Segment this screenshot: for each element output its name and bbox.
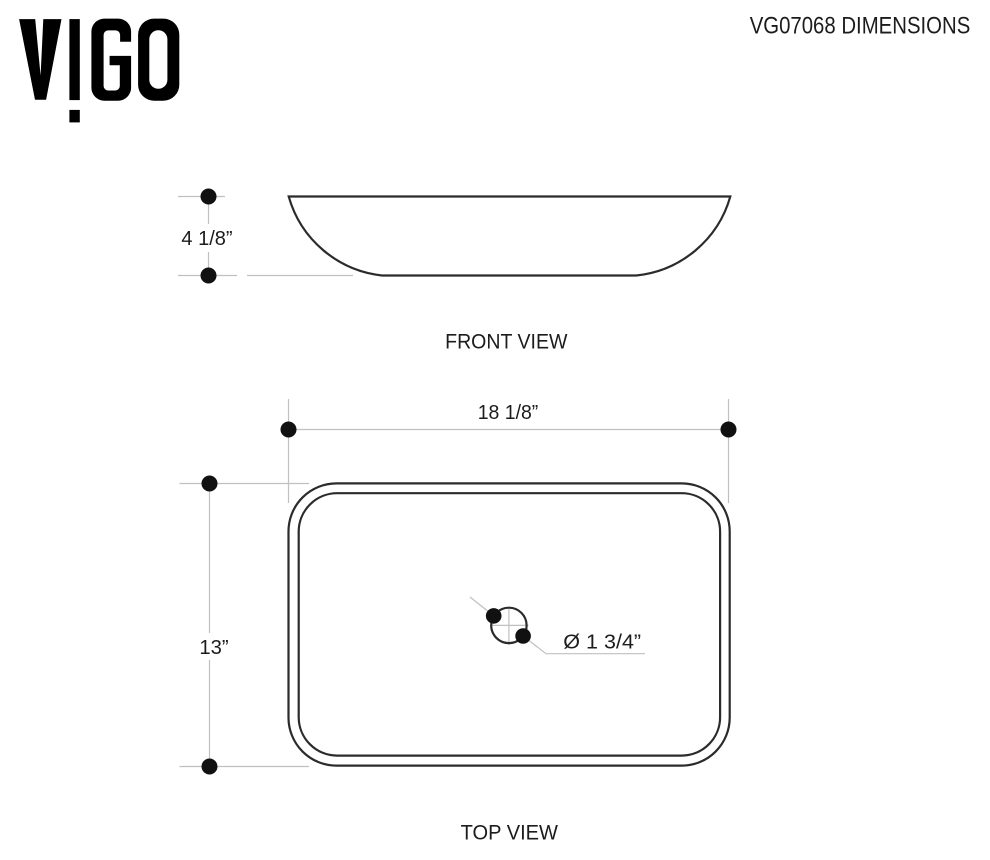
svg-text:13”: 13” xyxy=(199,637,228,659)
svg-text:VG07068 DIMENSIONS: VG07068 DIMENSIONS xyxy=(750,13,971,40)
svg-text:TOP VIEW: TOP VIEW xyxy=(461,822,558,845)
svg-text:18 1/8”: 18 1/8” xyxy=(478,402,539,424)
svg-text:4 1/8”: 4 1/8” xyxy=(181,228,232,250)
svg-text:Ø 1 3/4”: Ø 1 3/4” xyxy=(563,632,641,654)
svg-text:FRONT VIEW: FRONT VIEW xyxy=(445,331,567,354)
